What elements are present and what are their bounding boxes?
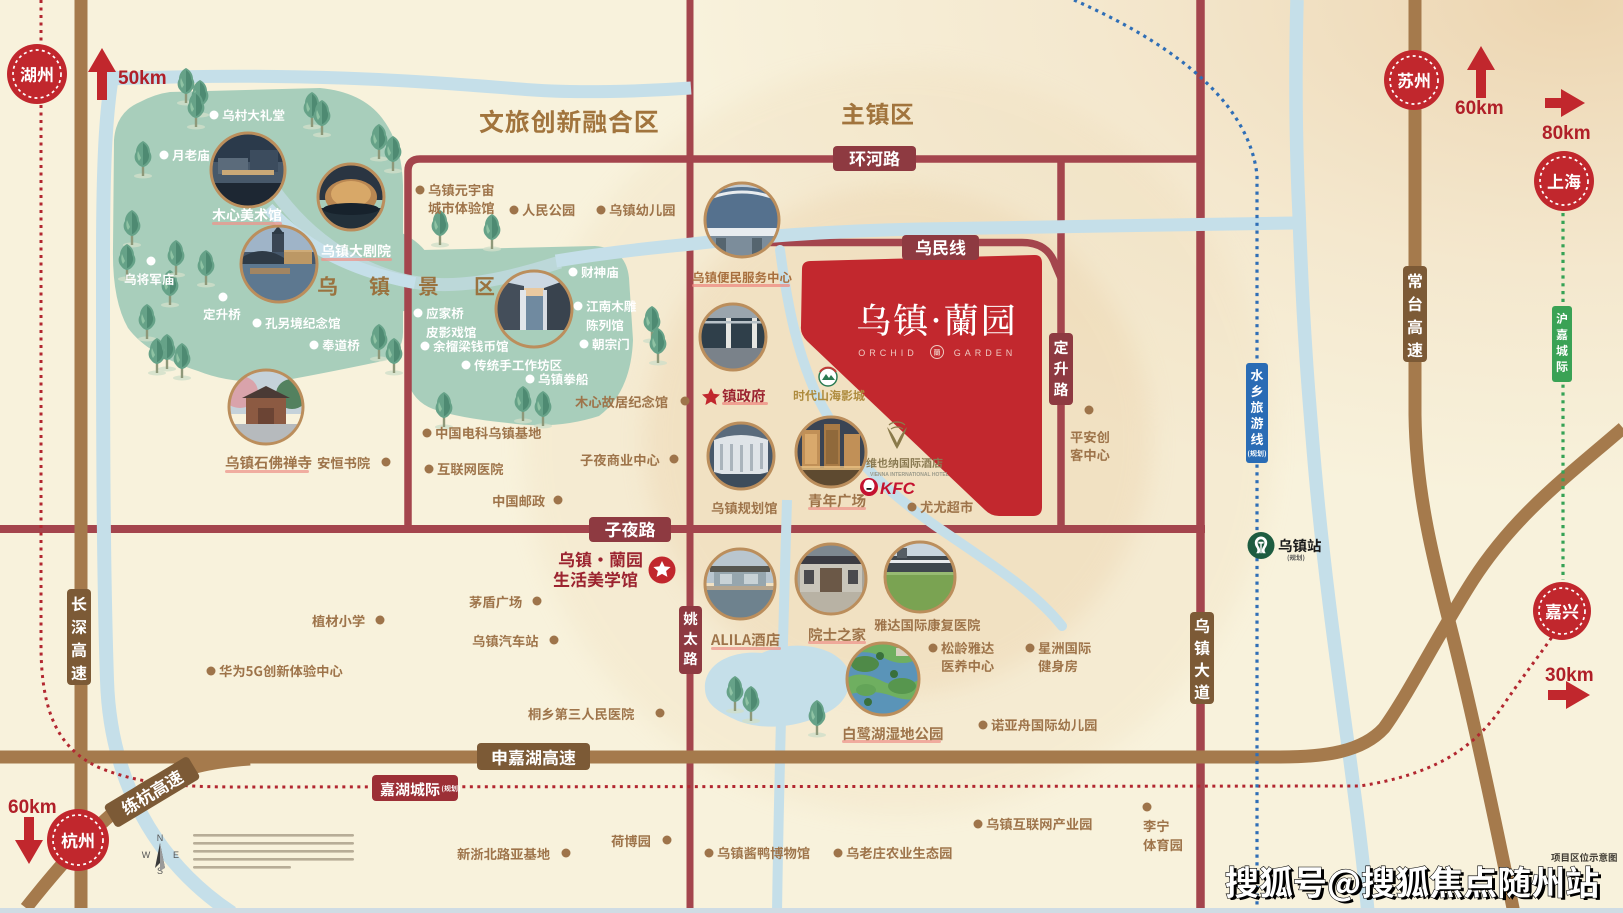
svg-text:60km: 60km: [8, 797, 57, 818]
svg-text:KFC: KFC: [880, 479, 916, 498]
svg-text:80km: 80km: [1542, 123, 1591, 144]
svg-text:60km: 60km: [1455, 98, 1504, 119]
svg-text:VIENNA INTERNATIONAL HOTEL: VIENNA INTERNATIONAL HOTEL: [870, 472, 949, 478]
svg-text:ORCHID: ORCHID: [858, 348, 918, 358]
svg-text:N: N: [157, 833, 164, 843]
svg-text:GARDEN: GARDEN: [954, 348, 1017, 358]
svg-text:50km: 50km: [118, 68, 167, 89]
svg-text:E: E: [173, 850, 179, 860]
svg-text:30km: 30km: [1545, 665, 1594, 686]
svg-text:W: W: [142, 850, 151, 860]
